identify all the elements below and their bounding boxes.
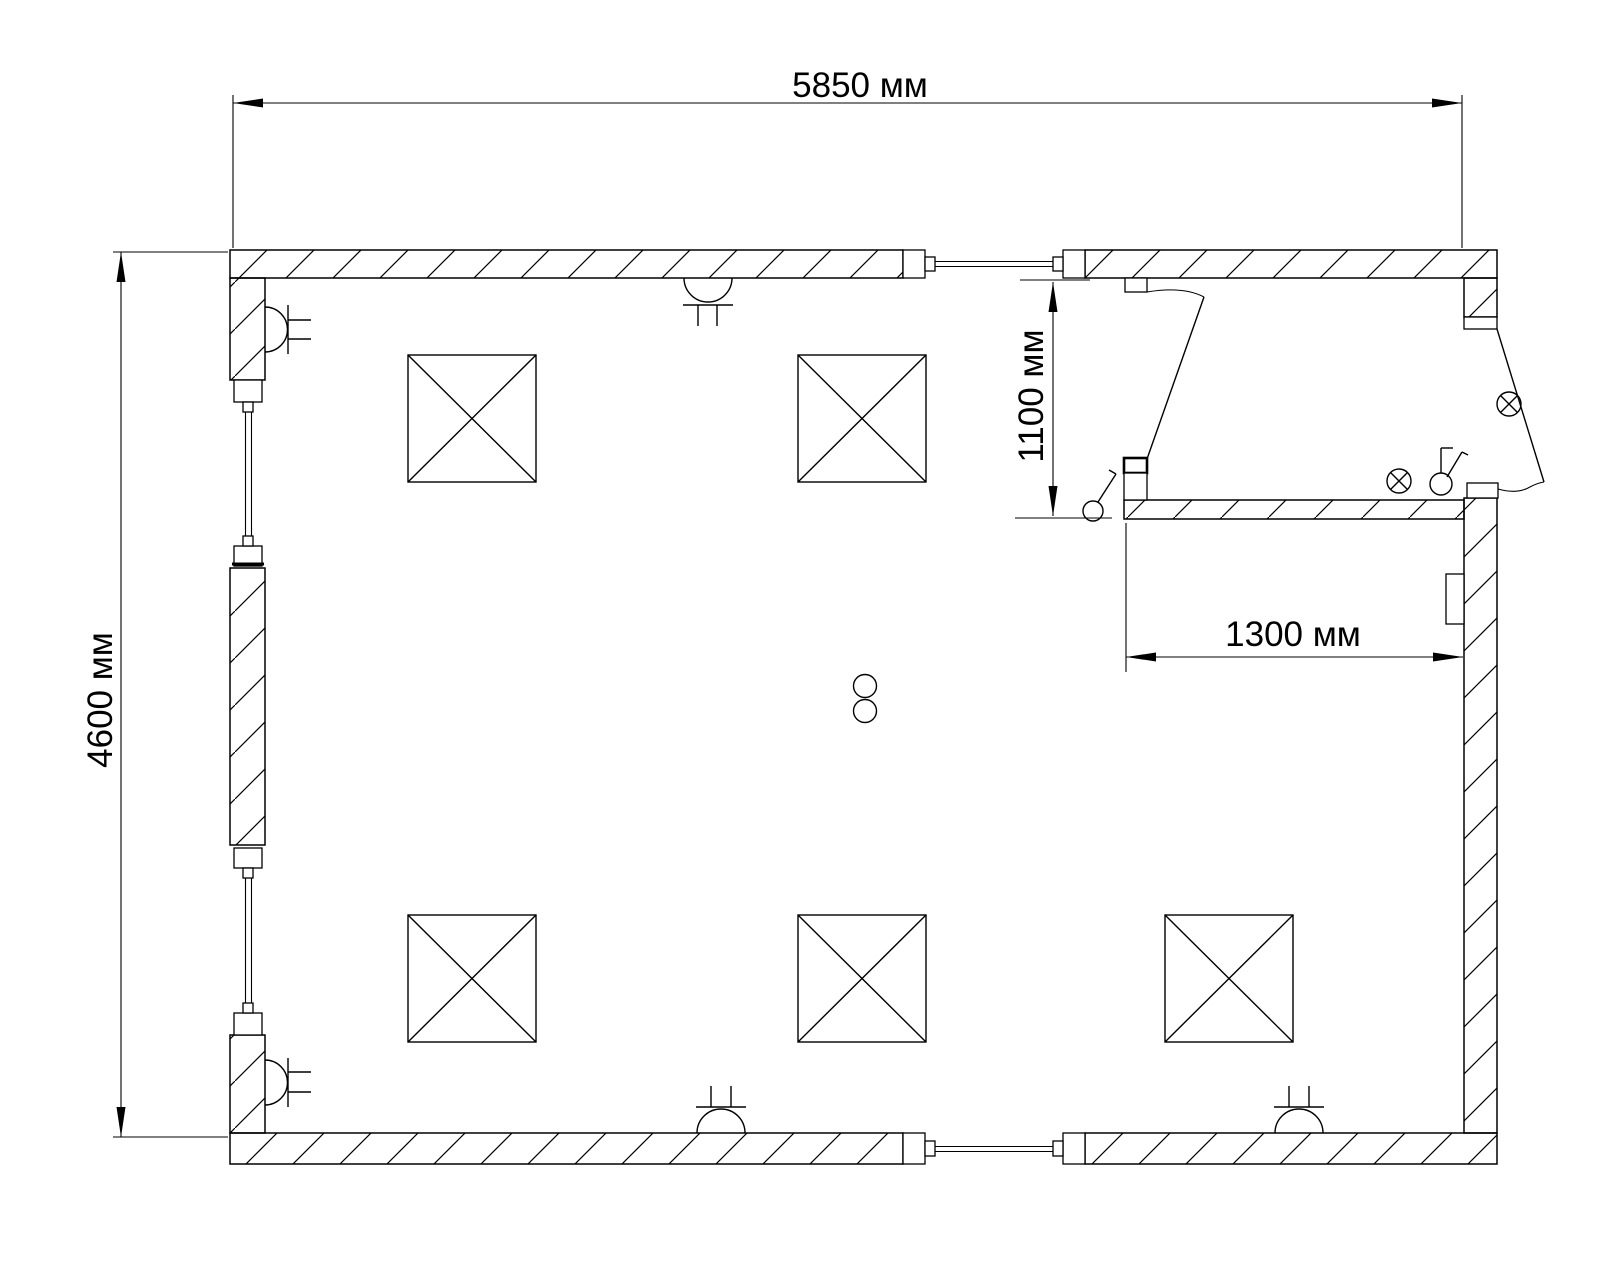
window-jamb — [903, 1133, 925, 1164]
ceiling-panel-2 — [798, 355, 926, 482]
wall-lamp-icon — [265, 1058, 311, 1107]
wall-left-middle-pier — [230, 568, 265, 845]
switch-icon — [1083, 470, 1116, 521]
door-jamb-bottom — [1124, 458, 1147, 473]
wall-box — [1446, 574, 1464, 624]
wall-right-top-stub — [1464, 278, 1497, 317]
ceiling-panel-4 — [798, 915, 926, 1042]
partition-wall — [1124, 500, 1464, 519]
wall-bottom-left-segment — [230, 1133, 903, 1164]
wall-lamp-icon — [1274, 1086, 1324, 1133]
exterior-walls — [230, 250, 1497, 1164]
door-swing-arc — [1147, 290, 1204, 297]
window-jamb-tongue — [925, 257, 935, 271]
dim-label-entry-depth: 1100 мм — [1012, 329, 1051, 462]
window-jamb-tongue — [1053, 257, 1063, 271]
switch-two-gang-icon — [1430, 448, 1468, 495]
lamp-icon — [1497, 392, 1521, 416]
dimension-entry-depth: 1100 мм — [1012, 280, 1112, 518]
window-jamb — [1063, 1133, 1085, 1164]
window-jamb — [234, 380, 262, 402]
dimension-entry-width: 1300 мм — [1126, 523, 1463, 672]
dim-label-total-height: 4600 мм — [81, 632, 120, 768]
ceiling-panel-3 — [408, 915, 536, 1042]
door-swing-arc — [1498, 482, 1544, 491]
dim-label-total-width: 5850 мм — [792, 66, 928, 105]
wall-lamp-icon — [265, 305, 311, 354]
wall-right-lower-segment — [1464, 498, 1497, 1133]
door-post — [1124, 473, 1147, 500]
wall-top-left-segment — [230, 250, 903, 278]
window-left-lower — [234, 848, 262, 1035]
window-jamb-tongue — [925, 1141, 935, 1156]
wall-lamp-icon — [696, 1086, 746, 1133]
door-jamb-top — [1464, 317, 1497, 329]
window-jamb-tongue — [243, 536, 253, 546]
window-jamb-tongue — [243, 1003, 253, 1013]
window-jamb — [234, 848, 262, 868]
dimension-total-width: 5850 мм — [233, 66, 1462, 248]
lamp-icon — [1387, 469, 1411, 493]
window-jamb — [903, 250, 925, 278]
window-jamb-tongue — [243, 868, 253, 878]
ceiling-panel-1 — [408, 355, 536, 482]
wall-top-right-segment — [1085, 250, 1497, 278]
door-jamb-top — [1125, 278, 1147, 292]
door-jamb-bottom — [1467, 483, 1498, 498]
wall-left-top-pier — [230, 278, 265, 380]
wall-bottom-right-segment — [1085, 1133, 1497, 1164]
floor-plan-page: 5850 мм 4600 мм 1100 мм 1300 мм — [0, 0, 1600, 1280]
pendant-point-icon — [854, 675, 877, 723]
wall-lamp-icon — [683, 278, 733, 326]
ceiling-panel-5 — [1165, 915, 1293, 1042]
dimension-total-height: 4600 мм — [81, 252, 228, 1137]
interior-door — [1124, 278, 1204, 500]
door-leaf — [1147, 297, 1204, 459]
wall-left-bottom-pier — [230, 1035, 265, 1133]
entrance-door — [1464, 317, 1544, 498]
window-bottom — [903, 1133, 1085, 1164]
window-jamb-tongue — [1053, 1141, 1063, 1156]
window-jamb — [234, 1013, 262, 1035]
window-jamb — [1063, 250, 1085, 278]
window-top — [903, 250, 1085, 278]
window-jamb-tongue — [243, 402, 253, 412]
dim-label-entry-width: 1300 мм — [1225, 615, 1361, 654]
floor-plan-svg: 5850 мм 4600 мм 1100 мм 1300 мм — [0, 0, 1600, 1280]
window-left-upper — [232, 380, 264, 566]
